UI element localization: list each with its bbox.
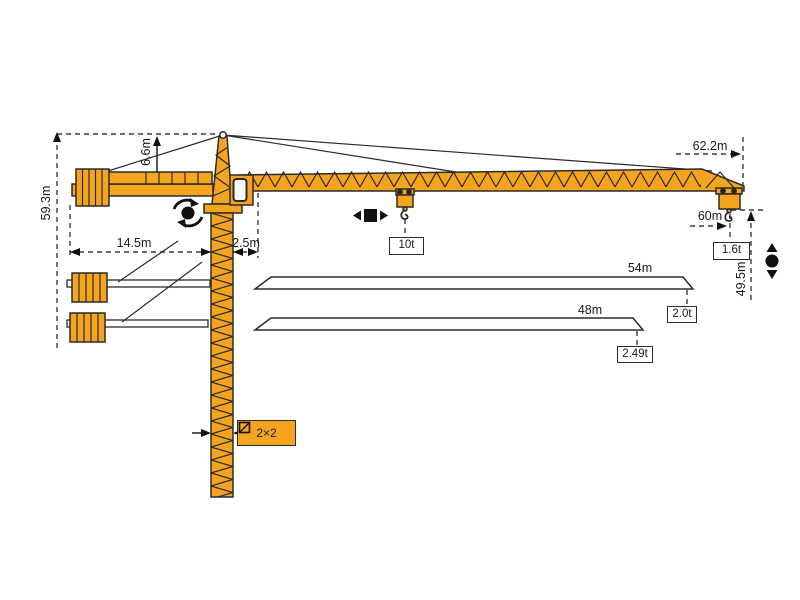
counter-jib-pendant [108, 135, 223, 171]
apex-pin [220, 132, 226, 138]
jib-lattice [241, 171, 701, 188]
trolley-wheel [398, 190, 402, 194]
trolley-travel-square [364, 209, 377, 222]
jib-pendant-outer [223, 135, 712, 171]
crane-structure [72, 132, 744, 497]
hoist-icon [766, 243, 779, 279]
crane-drawing [0, 0, 800, 600]
cab-window [234, 179, 247, 201]
label-counter-jib-radius: 14.5m [104, 236, 164, 250]
counterweight-options [67, 241, 210, 342]
trolley-travel-arrow-left [353, 211, 361, 221]
label-total-height: 59.3m [39, 173, 53, 233]
label-tower-head-height: 6.6m [139, 127, 153, 177]
jib-length-options [255, 277, 693, 330]
counterweight-option-2 [70, 313, 105, 342]
pendant-cables [108, 135, 712, 173]
hoist-arrow-down [767, 270, 778, 279]
mast-section-text: 2×2 [256, 427, 276, 439]
slewing-arrow-top [190, 198, 199, 207]
arrow-left-counter-radius [70, 248, 80, 256]
jib-profile-54m [255, 277, 693, 289]
trolley-wheel [721, 189, 725, 193]
label-jib-option-54: 54m [615, 261, 665, 275]
slewing-dot [182, 207, 195, 220]
label-jib-option-48: 48m [565, 303, 615, 317]
mast-lattice [211, 213, 233, 497]
arrow-mast-width-left [201, 429, 211, 437]
trolley-wheel [732, 189, 736, 193]
slewing-icon [174, 198, 202, 228]
arrow-right-tip-radius [717, 222, 727, 230]
trolley-mid [396, 189, 414, 219]
trolley-body [719, 194, 740, 209]
trolley-wheel [407, 190, 411, 194]
badge-max-capacity: 10t [389, 237, 424, 255]
arrow-right-counter-radius [201, 248, 211, 256]
trolley-body [397, 195, 413, 207]
arrow-up-hook-height [747, 211, 755, 221]
crane-dimension-diagram: 59.3m 6.6m 14.5m 2.5m 62.2m 60m 49.5m 54… [0, 0, 800, 600]
badge-tip-capacity-54m: 2.0t [667, 306, 697, 323]
trolley-travel-arrow-right [380, 211, 388, 221]
tower-head [212, 136, 232, 204]
counterweight-block [76, 169, 109, 206]
badge-tip-capacity-48m: 2.49t [617, 346, 653, 363]
jib-profile-48m [255, 318, 643, 330]
counterweight-option-1 [72, 273, 107, 302]
hoist-dot [766, 255, 779, 268]
label-tip-hook-radius: 60m [688, 209, 732, 223]
hoist-arrow-up [767, 243, 778, 252]
badge-tip-capacity-60m: 1.6t [713, 242, 750, 260]
counter-jib-walkway [108, 172, 212, 184]
label-max-jib-radius: 62.2m [680, 139, 740, 153]
mast-section-icon [238, 421, 251, 434]
trolley-frame [716, 188, 742, 194]
mast-section-label: 2×2 [237, 420, 296, 446]
trolley-travel-icon [353, 209, 388, 222]
slewing-arrow-bottom [177, 219, 186, 228]
jib-pendant-inner [223, 135, 462, 173]
label-rear-offset: 2.5m [221, 236, 271, 250]
